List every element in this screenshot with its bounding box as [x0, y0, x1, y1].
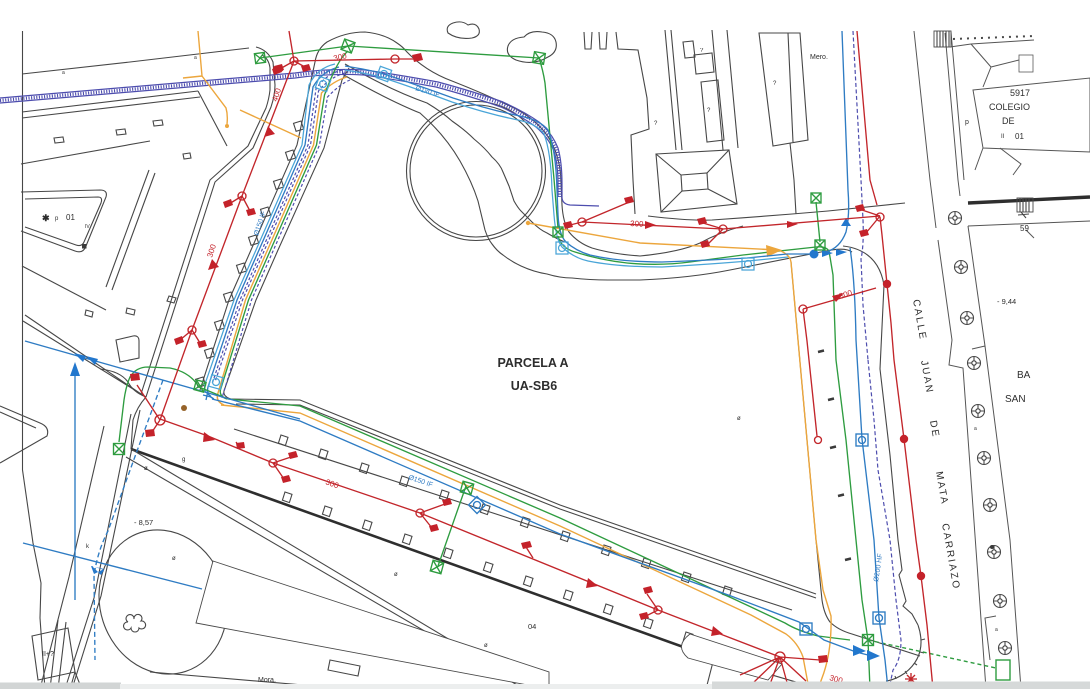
svg-text:✱: ✱ [42, 213, 50, 223]
svg-text:BA: BA [1017, 370, 1031, 381]
svg-text:59: 59 [1020, 224, 1029, 233]
svg-text:01: 01 [66, 213, 75, 222]
svg-text:p: p [965, 119, 969, 126]
svg-text:DE: DE [1002, 116, 1015, 126]
svg-text:a: a [62, 70, 65, 76]
svg-text:COLEGIO: COLEGIO [989, 102, 1030, 112]
svg-text:ø: ø [484, 643, 488, 649]
svg-text:UA-SB6: UA-SB6 [511, 379, 558, 393]
svg-text:a: a [995, 627, 998, 633]
svg-text:- 8,57: - 8,57 [134, 518, 153, 527]
svg-text:II+?: II+? [42, 651, 54, 658]
svg-text:04: 04 [528, 622, 536, 631]
svg-text:5917: 5917 [1010, 88, 1030, 98]
svg-text:Mora.: Mora. [258, 677, 276, 684]
svg-text:IV: IV [85, 224, 90, 230]
svg-text:g: g [182, 457, 185, 463]
svg-text:II: II [1001, 134, 1005, 140]
svg-text:SAN: SAN [1005, 394, 1026, 405]
svg-text:- 9,44: - 9,44 [997, 297, 1016, 306]
svg-text:300: 300 [630, 219, 644, 229]
svg-text:ø: ø [394, 572, 398, 578]
svg-text:ø: ø [144, 466, 148, 472]
svg-text:a: a [194, 55, 197, 61]
svg-text:a: a [974, 426, 977, 432]
svg-text:PARCELA A: PARCELA A [497, 356, 568, 370]
svg-text:ø: ø [737, 416, 741, 422]
svg-text:ø: ø [172, 556, 176, 562]
svg-text:Mero.: Mero. [810, 54, 828, 61]
svg-text:01: 01 [1015, 132, 1024, 141]
